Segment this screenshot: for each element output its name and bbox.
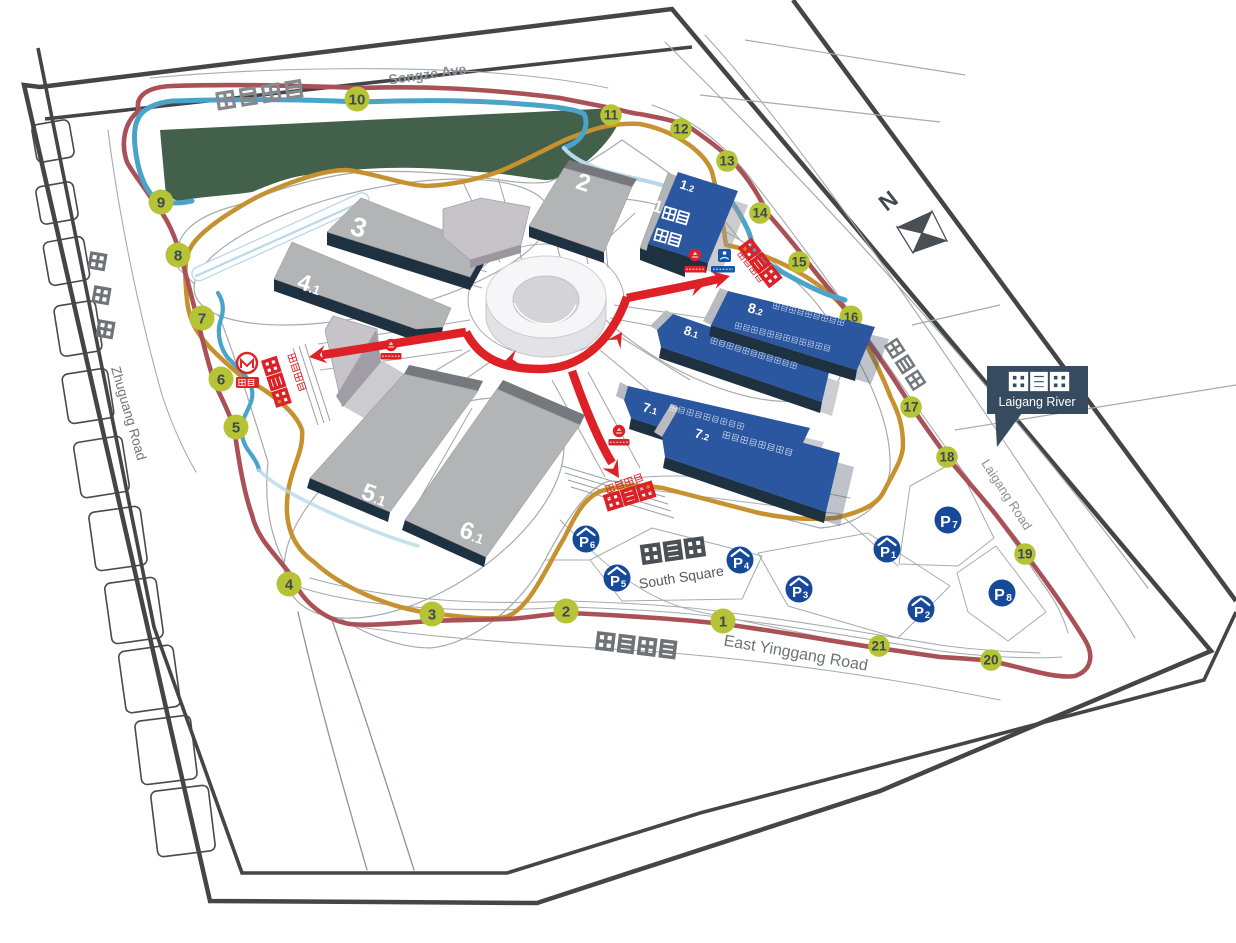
svg-text:9: 9 — [157, 194, 165, 211]
svg-text:7: 7 — [952, 520, 958, 531]
svg-text:14: 14 — [752, 206, 768, 221]
svg-text:2: 2 — [562, 603, 570, 620]
svg-text:10: 10 — [349, 91, 366, 108]
svg-text:5: 5 — [232, 419, 240, 436]
svg-text:P: P — [792, 584, 802, 601]
svg-text:8: 8 — [174, 247, 182, 264]
svg-text:Laigang River: Laigang River — [998, 395, 1075, 409]
svg-text:P: P — [579, 534, 589, 551]
svg-text:1: 1 — [891, 550, 897, 561]
svg-text:18: 18 — [939, 450, 955, 465]
svg-text:5: 5 — [621, 579, 627, 590]
svg-text:P: P — [610, 573, 620, 590]
svg-text:P: P — [914, 604, 924, 621]
svg-text:3: 3 — [803, 590, 808, 601]
svg-text:13: 13 — [719, 154, 735, 169]
svg-text:P: P — [880, 544, 890, 561]
svg-text:20: 20 — [983, 653, 998, 668]
svg-text:2: 2 — [925, 610, 930, 621]
svg-text:19: 19 — [1017, 547, 1032, 562]
svg-text:6: 6 — [590, 540, 595, 551]
svg-text:15: 15 — [791, 255, 807, 270]
svg-text:6: 6 — [217, 371, 225, 388]
svg-text:1: 1 — [719, 613, 727, 630]
svg-text:P: P — [733, 555, 743, 572]
svg-text:3: 3 — [428, 606, 436, 623]
svg-text:P: P — [940, 514, 951, 531]
svg-text:8: 8 — [1006, 593, 1012, 604]
svg-text:7: 7 — [198, 310, 206, 327]
svg-text:4: 4 — [744, 561, 750, 572]
svg-text:21: 21 — [871, 639, 887, 654]
svg-text:11: 11 — [604, 108, 619, 123]
svg-text:12: 12 — [673, 122, 688, 137]
svg-text:P: P — [994, 587, 1005, 604]
svg-text:4: 4 — [285, 576, 294, 593]
svg-text:17: 17 — [903, 400, 918, 415]
